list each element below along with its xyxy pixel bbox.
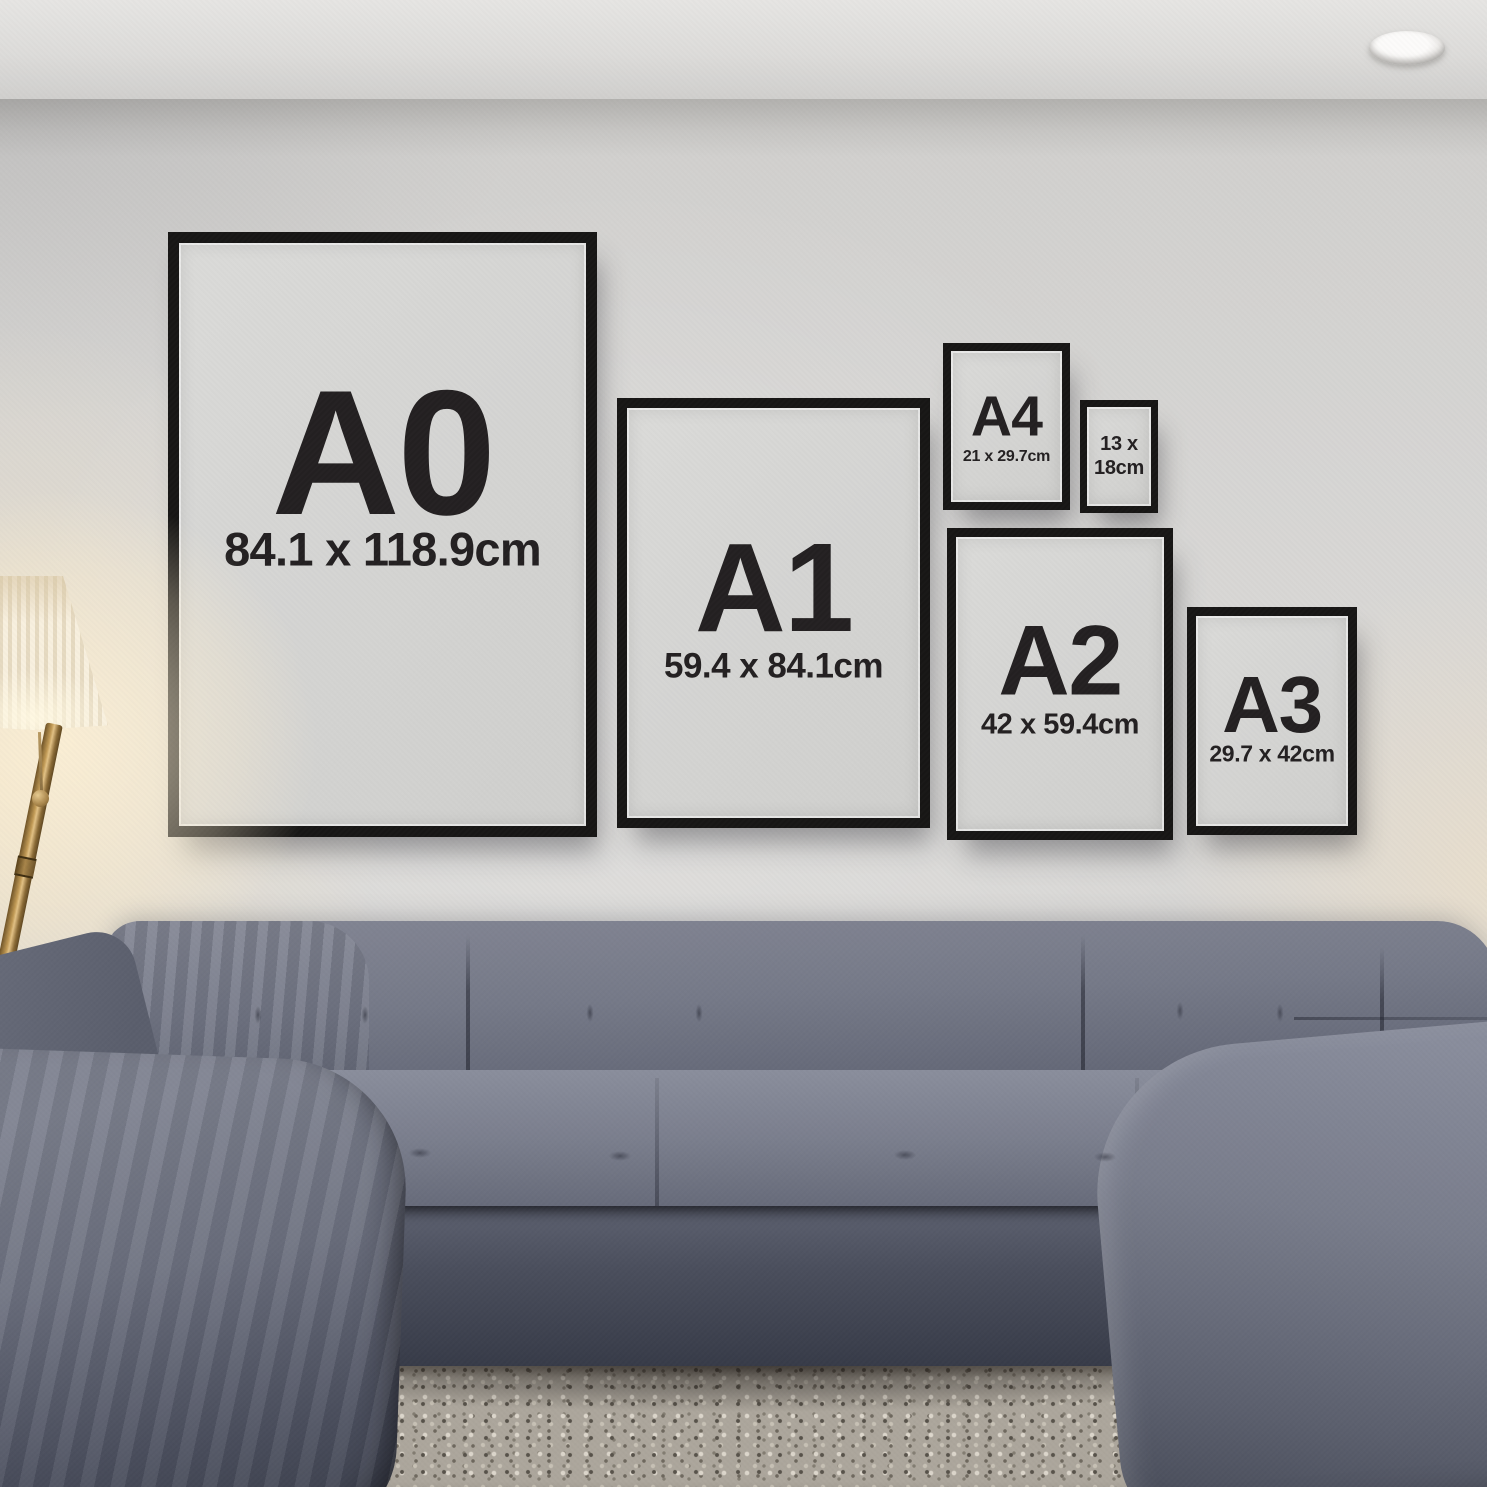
backrest-tuft-crease <box>1294 1017 1487 1020</box>
lamp-pole-joint <box>14 855 37 878</box>
ceiling-wall-shadow <box>0 99 1487 157</box>
frame-a4: A4 21 x 29.7cm <box>943 343 1070 510</box>
sofa-left-chaise <box>0 1047 410 1487</box>
poster-dimensions: 13 x 18cm <box>1094 432 1144 480</box>
poster-a1: A1 59.4 x 84.1cm <box>627 408 920 818</box>
poster-a3: A3 29.7 x 42cm <box>1196 616 1348 826</box>
poster-size-label: A4 <box>971 389 1042 446</box>
poster-size-label: A2 <box>998 611 1122 710</box>
living-room-poster-size-mockup: A0 84.1 x 118.9cm A1 59.4 x 84.1cm A4 21… <box>0 0 1487 1487</box>
poster-dimensions: 59.4 x 84.1cm <box>664 649 883 684</box>
poster-13x18: 13 x 18cm <box>1087 407 1151 506</box>
sofa-right-chaise <box>1085 1015 1487 1487</box>
frame-a3: A3 29.7 x 42cm <box>1187 607 1357 835</box>
ceiling <box>0 0 1487 99</box>
frame-a2: A2 42 x 59.4cm <box>947 528 1173 840</box>
poster-a2: A2 42 x 59.4cm <box>956 537 1164 831</box>
recessed-ceiling-light <box>1369 31 1445 65</box>
poster-size-label: A1 <box>695 525 852 651</box>
frame-a1: A1 59.4 x 84.1cm <box>617 398 930 828</box>
lamp-pull-chain-ball <box>32 790 49 807</box>
poster-size-label: A0 <box>271 364 493 542</box>
frame-13x18: 13 x 18cm <box>1080 400 1158 513</box>
poster-a4: A4 21 x 29.7cm <box>951 351 1062 502</box>
poster-size-label: A3 <box>1222 665 1322 745</box>
poster-dimensions: 21 x 29.7cm <box>963 449 1050 465</box>
poster-dimensions: 29.7 x 42cm <box>1209 742 1334 765</box>
poster-dimensions: 42 x 59.4cm <box>981 711 1139 740</box>
